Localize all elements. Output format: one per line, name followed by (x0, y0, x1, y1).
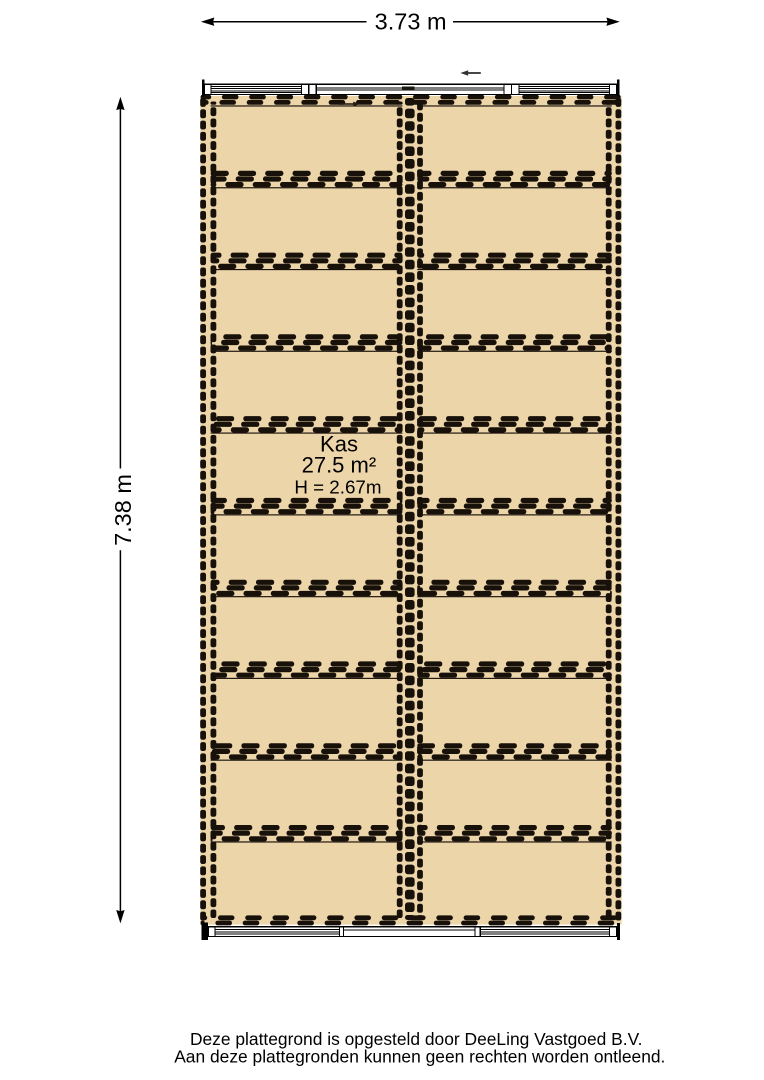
svg-text:3.73 m: 3.73 m (375, 8, 447, 34)
svg-text:7.38 m: 7.38 m (110, 474, 136, 546)
svg-text:Aan deze plattegronden kunnen: Aan deze plattegronden kunnen geen recht… (174, 1047, 665, 1067)
svg-text:27.5 m²: 27.5 m² (302, 452, 377, 477)
svg-text:H = 2.67m: H = 2.67m (294, 476, 381, 497)
